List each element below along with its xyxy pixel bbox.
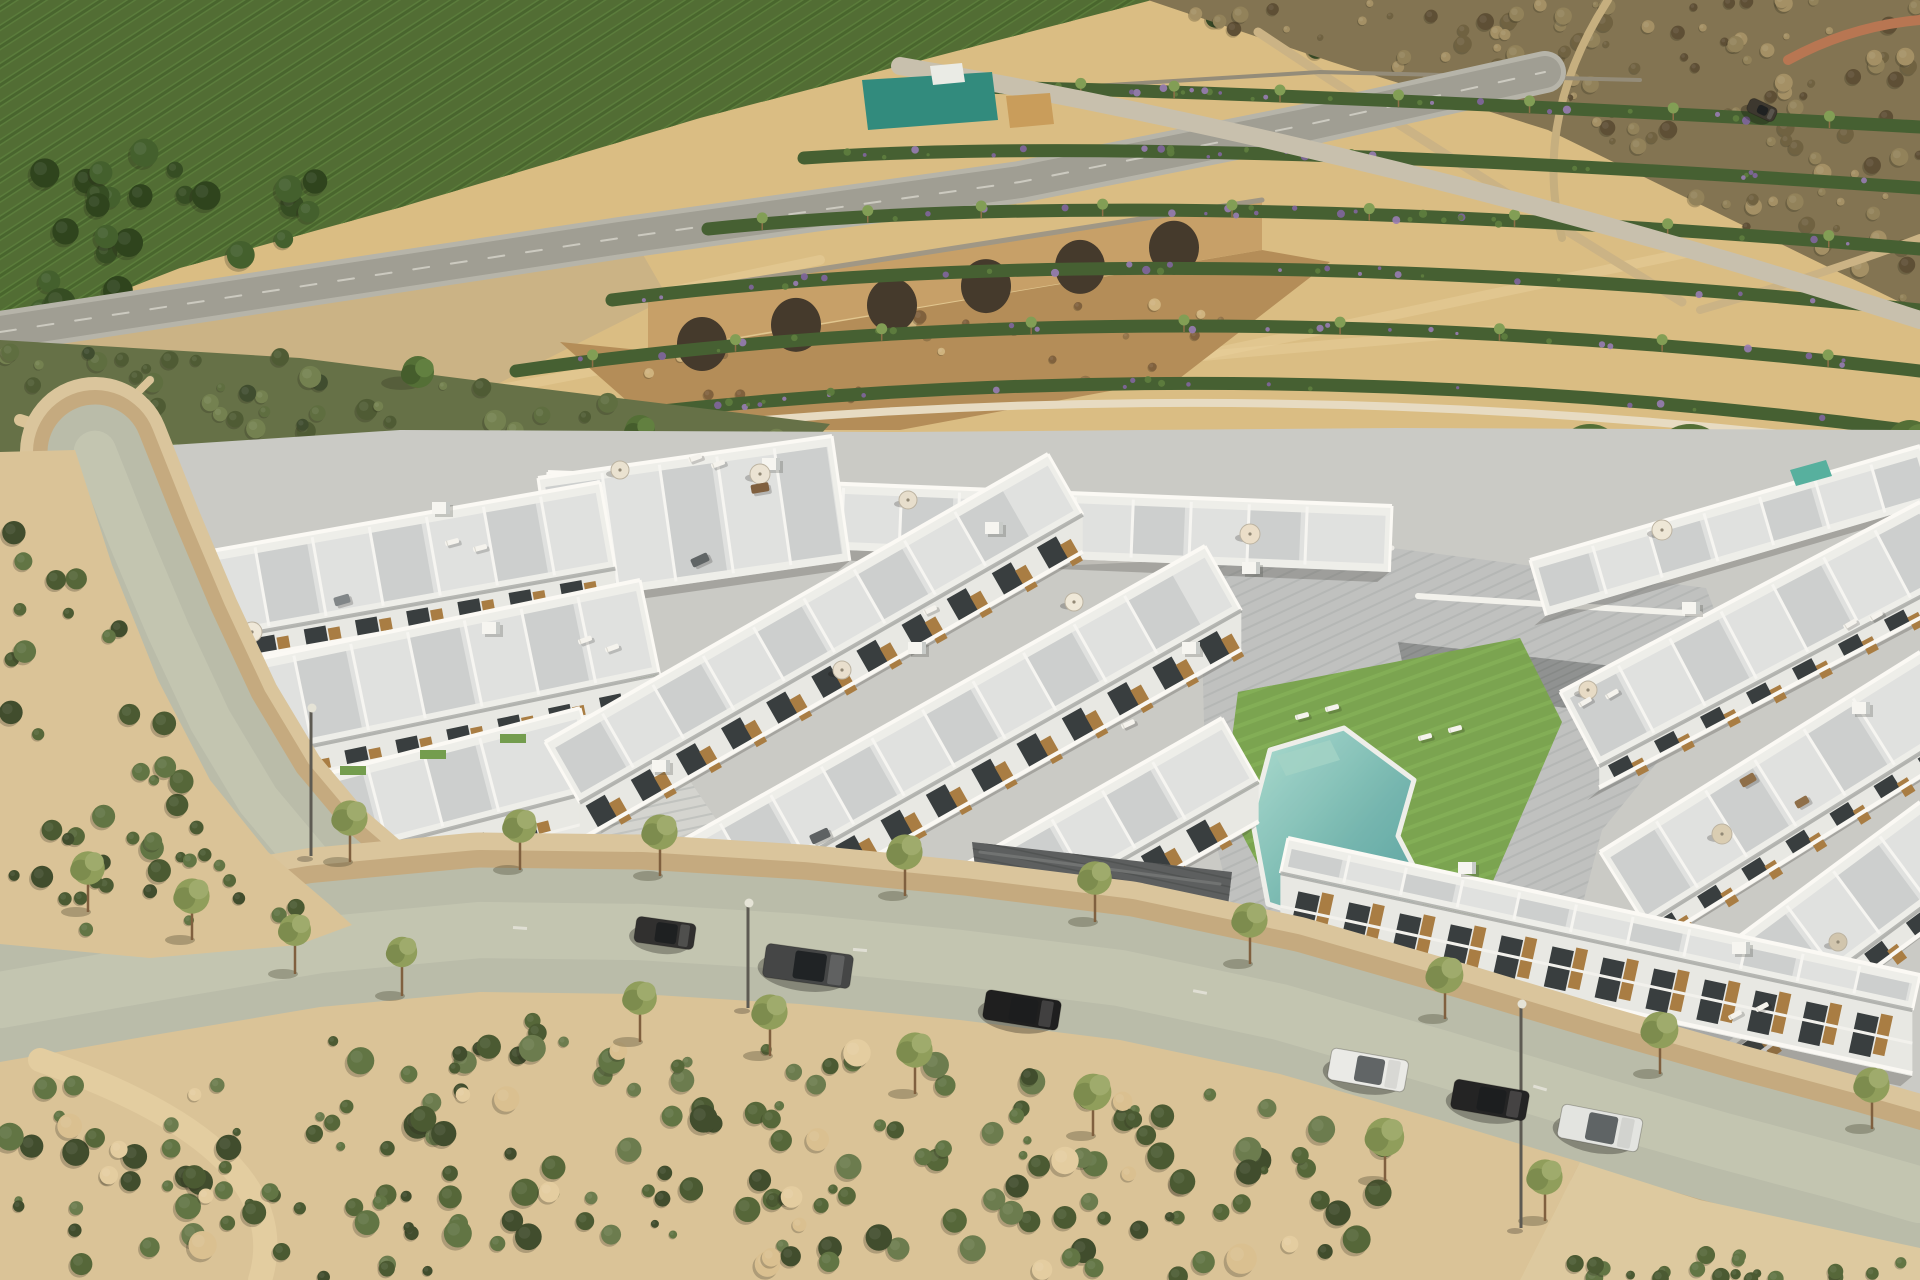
warm-tint-overlay [0,0,1920,1280]
aerial-photo-of-residential-complex: aerial-architectural-render [0,0,1920,1280]
warm-tint-overlay [0,0,1920,1280]
scene-canvas [0,0,1920,1280]
